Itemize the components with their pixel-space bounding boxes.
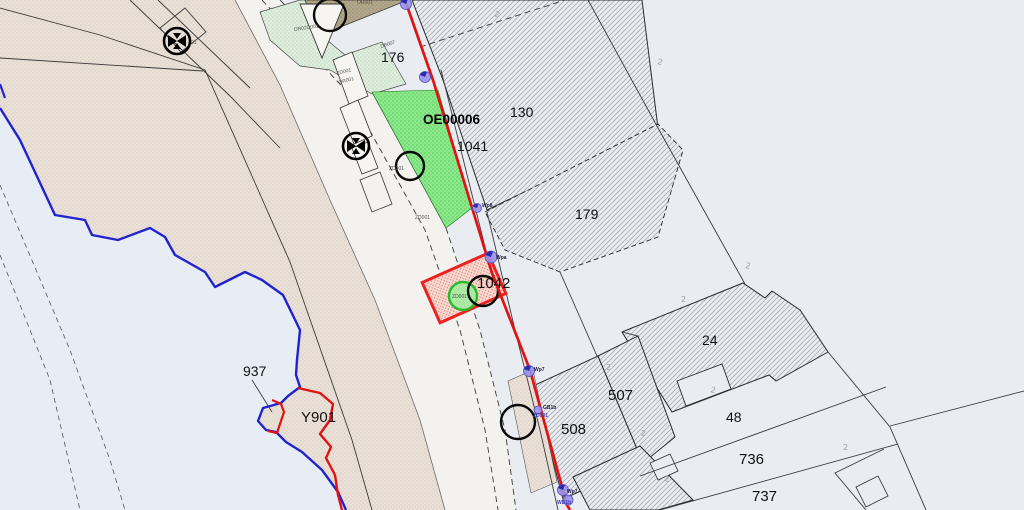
- survey-point-marker[interactable]: [473, 204, 482, 213]
- parcel-label-48: 48: [726, 409, 742, 425]
- green-circle-label: ZD001: [452, 294, 467, 300]
- survey-label: 01: [191, 40, 197, 46]
- marker-label: Wp7: [534, 367, 545, 373]
- survey-label: ZD001: [389, 166, 404, 172]
- fence-mark-glyph: 2: [606, 363, 611, 372]
- fence-mark-glyph: 2: [843, 443, 848, 452]
- marker-label: ZD001: [533, 413, 548, 419]
- parcel-label-937: 937: [243, 363, 267, 379]
- marker-label: WD1b: [557, 500, 571, 506]
- parcel-label-507: 507: [608, 387, 633, 404]
- cadastral-map-canvas[interactable]: ZD001: [0, 0, 1024, 510]
- parcel-label-737: 737: [752, 488, 777, 505]
- parcel-label-y901: Y901: [301, 409, 336, 426]
- parcel-label-24: 24: [702, 332, 718, 348]
- marker-label: GB1b: [543, 405, 556, 411]
- parcel-label-1042: 1042: [477, 275, 510, 292]
- map-viewport[interactable]: ZD001: [0, 0, 1024, 510]
- parcel-label-179: 179: [575, 206, 599, 222]
- parcel-label-736: 736: [739, 451, 764, 468]
- survey-point-marker[interactable]: [524, 366, 535, 377]
- parcel-label-508: 508: [561, 421, 586, 438]
- survey-point-marker[interactable]: [401, 0, 412, 10]
- object-code-label-oe00006: OE00006: [423, 112, 481, 127]
- survey-label: ZD001: [415, 215, 430, 221]
- survey-label: OR001: [357, 0, 373, 6]
- marker-label: Wpa: [496, 255, 507, 261]
- fence-mark-glyph: 2: [641, 429, 646, 438]
- marker-label: Wp7: [567, 489, 578, 495]
- survey-point-marker[interactable]: [420, 72, 431, 83]
- marker-label: Wp8: [482, 203, 493, 209]
- fence-mark-glyph: 2: [681, 295, 686, 304]
- parcel-label-1041: 1041: [457, 138, 488, 154]
- parcel-label-176: 176: [381, 49, 405, 65]
- parcel-label-130: 130: [510, 104, 534, 120]
